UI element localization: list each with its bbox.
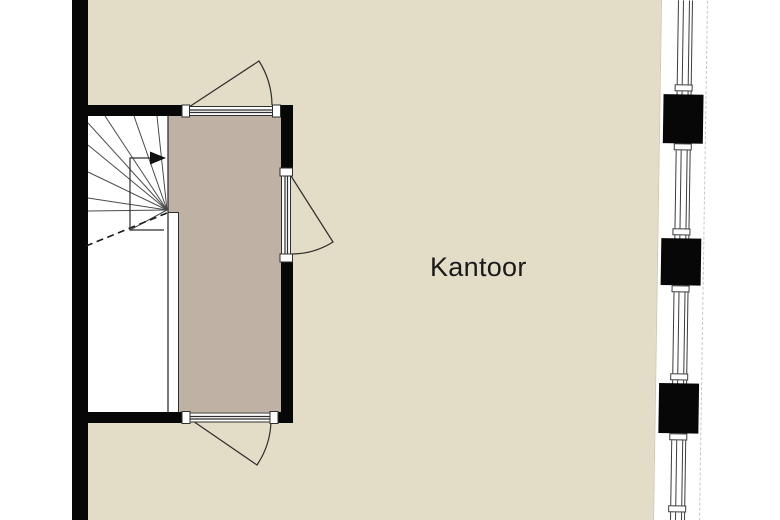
masonry-pier: [661, 238, 702, 286]
window-cap: [668, 505, 686, 512]
floorplan-canvas: Kantoor: [0, 0, 780, 520]
window-cap: [669, 433, 687, 440]
wall-hallway-right-upper: [281, 105, 293, 168]
masonry-pier: [663, 94, 704, 144]
window-cap: [672, 285, 690, 292]
stair-partition: [168, 212, 179, 413]
window-cap: [670, 373, 688, 380]
exterior-wall-left: [72, 0, 88, 520]
kantoor-room-label: Kantoor: [430, 253, 527, 281]
masonry-pier: [658, 383, 699, 434]
window-cap: [672, 228, 690, 235]
hallway-floor: [168, 116, 281, 412]
window-cap: [674, 143, 692, 150]
window-wall-right: [653, 0, 708, 520]
stairwell-floor: [88, 116, 168, 412]
wall-top-left: [88, 105, 182, 116]
wall-hallway-right-lower: [281, 262, 293, 423]
wall-bottom-left: [72, 412, 182, 423]
window-cap: [675, 84, 693, 91]
